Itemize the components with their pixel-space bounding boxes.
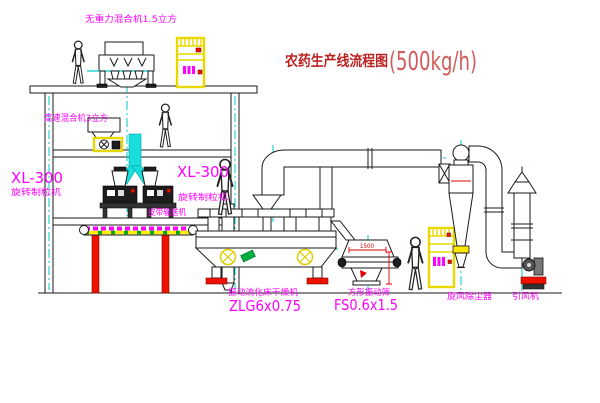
label-sieve-model: FS0.6x1.5 bbox=[334, 296, 398, 314]
gravity-mixer bbox=[87, 42, 156, 88]
belt-conveyor bbox=[80, 225, 198, 293]
control-cabinet-top bbox=[177, 38, 204, 87]
cyclone-valve bbox=[453, 246, 469, 253]
conveyor-post-right bbox=[162, 235, 169, 293]
label-granulator-center-model: XL-300 bbox=[177, 163, 229, 181]
dim-sieve-width: 1500 bbox=[360, 243, 374, 250]
floor-slab-mid bbox=[53, 150, 231, 157]
floor-slab-top bbox=[30, 86, 257, 93]
label-cyclone: 旋风除尘器 bbox=[447, 291, 493, 302]
square-sieve bbox=[331, 221, 401, 285]
granulator-right bbox=[142, 167, 173, 203]
induced-draft-fan bbox=[521, 258, 546, 289]
duct-riser bbox=[320, 167, 332, 209]
label-belt-conveyor: 皮带输送机 bbox=[148, 207, 186, 218]
label-granulator-left-model: XL-300 bbox=[11, 169, 63, 187]
person-mid-floor bbox=[160, 104, 172, 147]
control-cabinet-ground bbox=[429, 228, 454, 287]
drawing-title: 农药生产线流程图 bbox=[284, 52, 388, 70]
label-gravity-mixer: 无重力混合机1.5立方 bbox=[85, 13, 177, 25]
process-flow-drawing: 农药生产线流程图 (500kg/h) 无重力混合机1.5立方 高速混合机3立方 … bbox=[0, 0, 600, 403]
person-roof bbox=[72, 41, 84, 83]
label-granulator-left-name: 旋转制粒机 bbox=[11, 187, 62, 198]
label-high-speed-mixer: 高速混合机3立方 bbox=[44, 112, 108, 124]
conveyor-post-left bbox=[92, 235, 99, 293]
exhaust-stack bbox=[508, 167, 536, 258]
label-granulator-center-name: 旋转制粒机 bbox=[178, 192, 229, 203]
label-fan: 引风机 bbox=[512, 291, 540, 302]
label-dryer-model: ZLG6x0.75 bbox=[229, 297, 301, 315]
floor-slab-low bbox=[53, 218, 231, 225]
drawing-capacity: (500kg/h) bbox=[389, 47, 477, 77]
person-ground bbox=[408, 237, 422, 289]
exhaust-duct bbox=[262, 148, 441, 209]
